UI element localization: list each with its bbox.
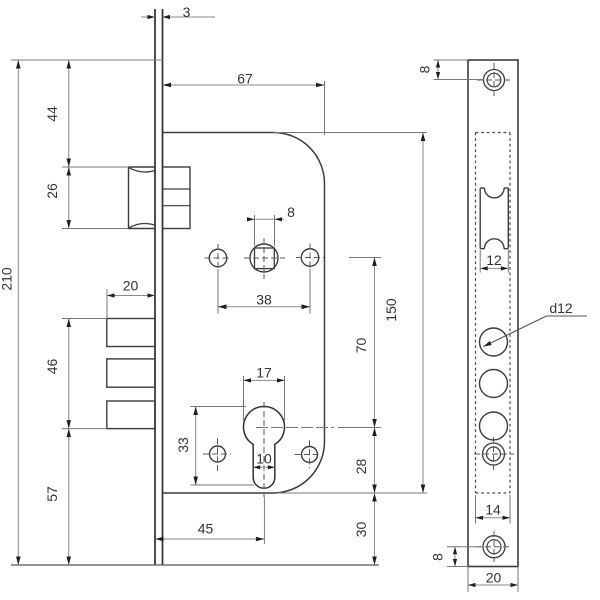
svg-text:d12: d12	[549, 300, 573, 316]
svg-text:46: 46	[44, 359, 60, 375]
svg-text:17: 17	[256, 365, 272, 381]
svg-text:10: 10	[256, 451, 272, 467]
svg-text:14: 14	[485, 502, 501, 518]
svg-text:30: 30	[353, 522, 369, 538]
svg-text:8: 8	[287, 204, 295, 220]
svg-text:210: 210	[0, 267, 15, 291]
svg-text:70: 70	[353, 338, 369, 354]
svg-text:38: 38	[256, 292, 272, 308]
svg-text:26: 26	[44, 183, 60, 199]
svg-text:28: 28	[353, 459, 369, 475]
svg-text:33: 33	[175, 437, 191, 453]
svg-text:8: 8	[417, 65, 433, 73]
svg-text:57: 57	[44, 486, 60, 502]
svg-text:20: 20	[123, 278, 139, 294]
svg-text:67: 67	[237, 71, 253, 87]
svg-text:12: 12	[486, 252, 502, 268]
svg-text:150: 150	[383, 298, 399, 322]
svg-text:8: 8	[430, 553, 446, 561]
svg-text:3: 3	[183, 4, 191, 20]
svg-text:44: 44	[44, 106, 60, 122]
svg-text:20: 20	[486, 570, 502, 586]
svg-text:45: 45	[198, 521, 214, 537]
